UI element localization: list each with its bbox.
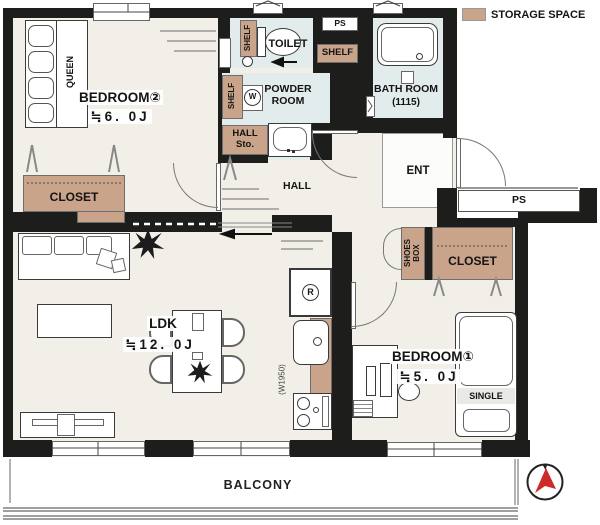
single-bed-band: SINGLE: [457, 388, 515, 404]
bathroom-size-text: (1115): [392, 97, 420, 108]
single-bed-pillow: [463, 409, 510, 432]
sofa-pillow: [111, 258, 126, 273]
desk-chair: [398, 382, 420, 401]
hall-storage: HALL Sto.: [222, 125, 268, 155]
basin-faucet-dot: [287, 149, 290, 152]
single-label-text: SINGLE: [469, 391, 503, 401]
bathroom-size: (1115): [371, 96, 441, 109]
bed-fold: [28, 77, 54, 99]
ldk-size-text: ≒12. 0J: [123, 337, 197, 352]
hall-label: HALL: [267, 180, 327, 194]
window-bedroom2-top: [93, 3, 150, 21]
closet-label-text: CLOSET: [50, 191, 99, 204]
toilet-paper-holder: [242, 56, 253, 67]
floor-plan: PS PS CLOSET SHELF SHELF SHELF HALL Sto.…: [0, 0, 600, 525]
powder-room-label: POWDER ROOM: [253, 84, 323, 108]
bedroom2-name-text: BEDROOM②: [77, 90, 163, 105]
closet-bedroom2-ext: [77, 212, 125, 223]
balcony-railing: [3, 508, 518, 519]
kitchen-width-label: (W1950): [275, 355, 290, 405]
coffee-table: [37, 304, 112, 338]
desk-shelf: [353, 400, 373, 417]
bed-fold: [28, 51, 54, 73]
kitchen-width-text: (W1950): [278, 364, 287, 395]
bedroom2-name: BEDROOM②: [55, 90, 185, 105]
washbasin-bowl: [273, 127, 307, 151]
toilet-label-text: TOILET: [269, 38, 308, 50]
fridge-label-text: R: [307, 287, 314, 297]
queen-label-text: QUEEN: [65, 56, 75, 88]
wall-shoesbox-closet-separator: [425, 227, 432, 280]
wall-kitchen-right: [332, 232, 352, 440]
table-item: [192, 313, 204, 331]
shelf-label-text: SHELF: [322, 48, 353, 59]
refrigerator-mark: R: [302, 284, 319, 301]
hall-label-text: HALL: [283, 181, 311, 193]
north-indicator-icon: [528, 464, 563, 500]
basin-faucet-dot: [292, 150, 295, 153]
stove-burner: [297, 414, 310, 427]
closet-label-text: CLOSET: [448, 255, 497, 268]
wall-bottom-1: [3, 440, 52, 457]
closet-bedroom2-label: CLOSET: [23, 188, 125, 208]
wall-ent-right-block: [437, 188, 457, 227]
bed-fold: [28, 103, 54, 123]
hall-storage-label: HALL Sto.: [232, 129, 257, 150]
bedroom2-size-text: ≒6. 0J: [88, 109, 151, 124]
shelf-wall: SHELF: [317, 44, 358, 63]
door-swing-entrance: [458, 138, 506, 186]
wall-bottom-4: [482, 440, 530, 457]
bed-fold: [28, 25, 54, 47]
bathtub-inner: [381, 27, 434, 62]
wall-hallstorage-bottom: [218, 155, 268, 163]
bedroom2-size: ≒6. 0J: [55, 109, 185, 124]
wall-left: [3, 8, 13, 457]
ps-right-label: PS: [512, 195, 526, 207]
shelf-powder-label: SHELF: [225, 71, 239, 121]
legend-swatch: [462, 8, 486, 21]
window-bedroom1: [387, 442, 482, 457]
shoes-box-label-text: SHOES BOX: [404, 239, 422, 267]
bedroom1-name: BEDROOM①: [368, 349, 498, 364]
ps-shaft-right: PS: [458, 190, 580, 212]
closet-bedroom1-label: CLOSET: [432, 252, 513, 272]
window-balcony-1: [52, 441, 145, 456]
shelf-label-text: SHELF: [228, 83, 237, 109]
table-item: [192, 352, 203, 360]
bathroom-label: BATH ROOM: [371, 83, 441, 96]
ps-top-label: PS: [334, 19, 345, 29]
wall-bottom-2: [145, 440, 193, 457]
bedroom1-size: ≒5. 0J: [364, 369, 494, 384]
ldk-name-text: LDK: [147, 316, 179, 331]
balcony-label-text: BALCONY: [224, 478, 293, 492]
window-balcony-2: [193, 441, 290, 456]
vent-toilet: [253, 3, 283, 14]
legend-label-text: STORAGE SPACE: [491, 9, 585, 21]
stove-burner: [297, 397, 310, 410]
wall-bath-right: [443, 8, 457, 138]
vent-bath: [373, 3, 403, 14]
tv-board-center: [57, 414, 75, 436]
legend-label: STORAGE SPACE: [491, 9, 585, 21]
ldk-name: LDK: [133, 316, 193, 331]
balcony-label: BALCONY: [198, 477, 318, 492]
ps-shaft-top: PS: [322, 17, 358, 31]
sofa-cushion: [22, 236, 52, 255]
ldk-size: ≒12. 0J: [110, 337, 210, 352]
sofa-cushion: [54, 236, 84, 255]
bathroom-label-text: BATH ROOM: [374, 84, 438, 96]
entrance-label-text: ENT: [407, 165, 430, 178]
wall-duct-inset: [219, 38, 231, 68]
shelf-label-text: SHELF: [244, 25, 253, 51]
shoes-box-label: SHOES BOX: [402, 228, 424, 278]
stove-knob: [313, 407, 319, 413]
bedroom1-name-text: BEDROOM①: [390, 349, 476, 364]
toilet-label: TOILET: [255, 37, 321, 51]
wall-ldk-top-right: [272, 215, 332, 232]
powder-label-text: POWDER ROOM: [264, 84, 311, 108]
bedroom1-size-text: ≒5. 0J: [397, 369, 460, 384]
dining-chair: [149, 355, 172, 384]
stove-grill: [322, 396, 329, 427]
wall-bedroom1-top: [457, 218, 518, 227]
entrance-label: ENT: [388, 164, 448, 178]
bathtub-drain: [416, 53, 423, 60]
kitchen-sink: [293, 320, 329, 365]
wall-bottom-3: [290, 440, 387, 457]
faucet: [313, 337, 322, 346]
